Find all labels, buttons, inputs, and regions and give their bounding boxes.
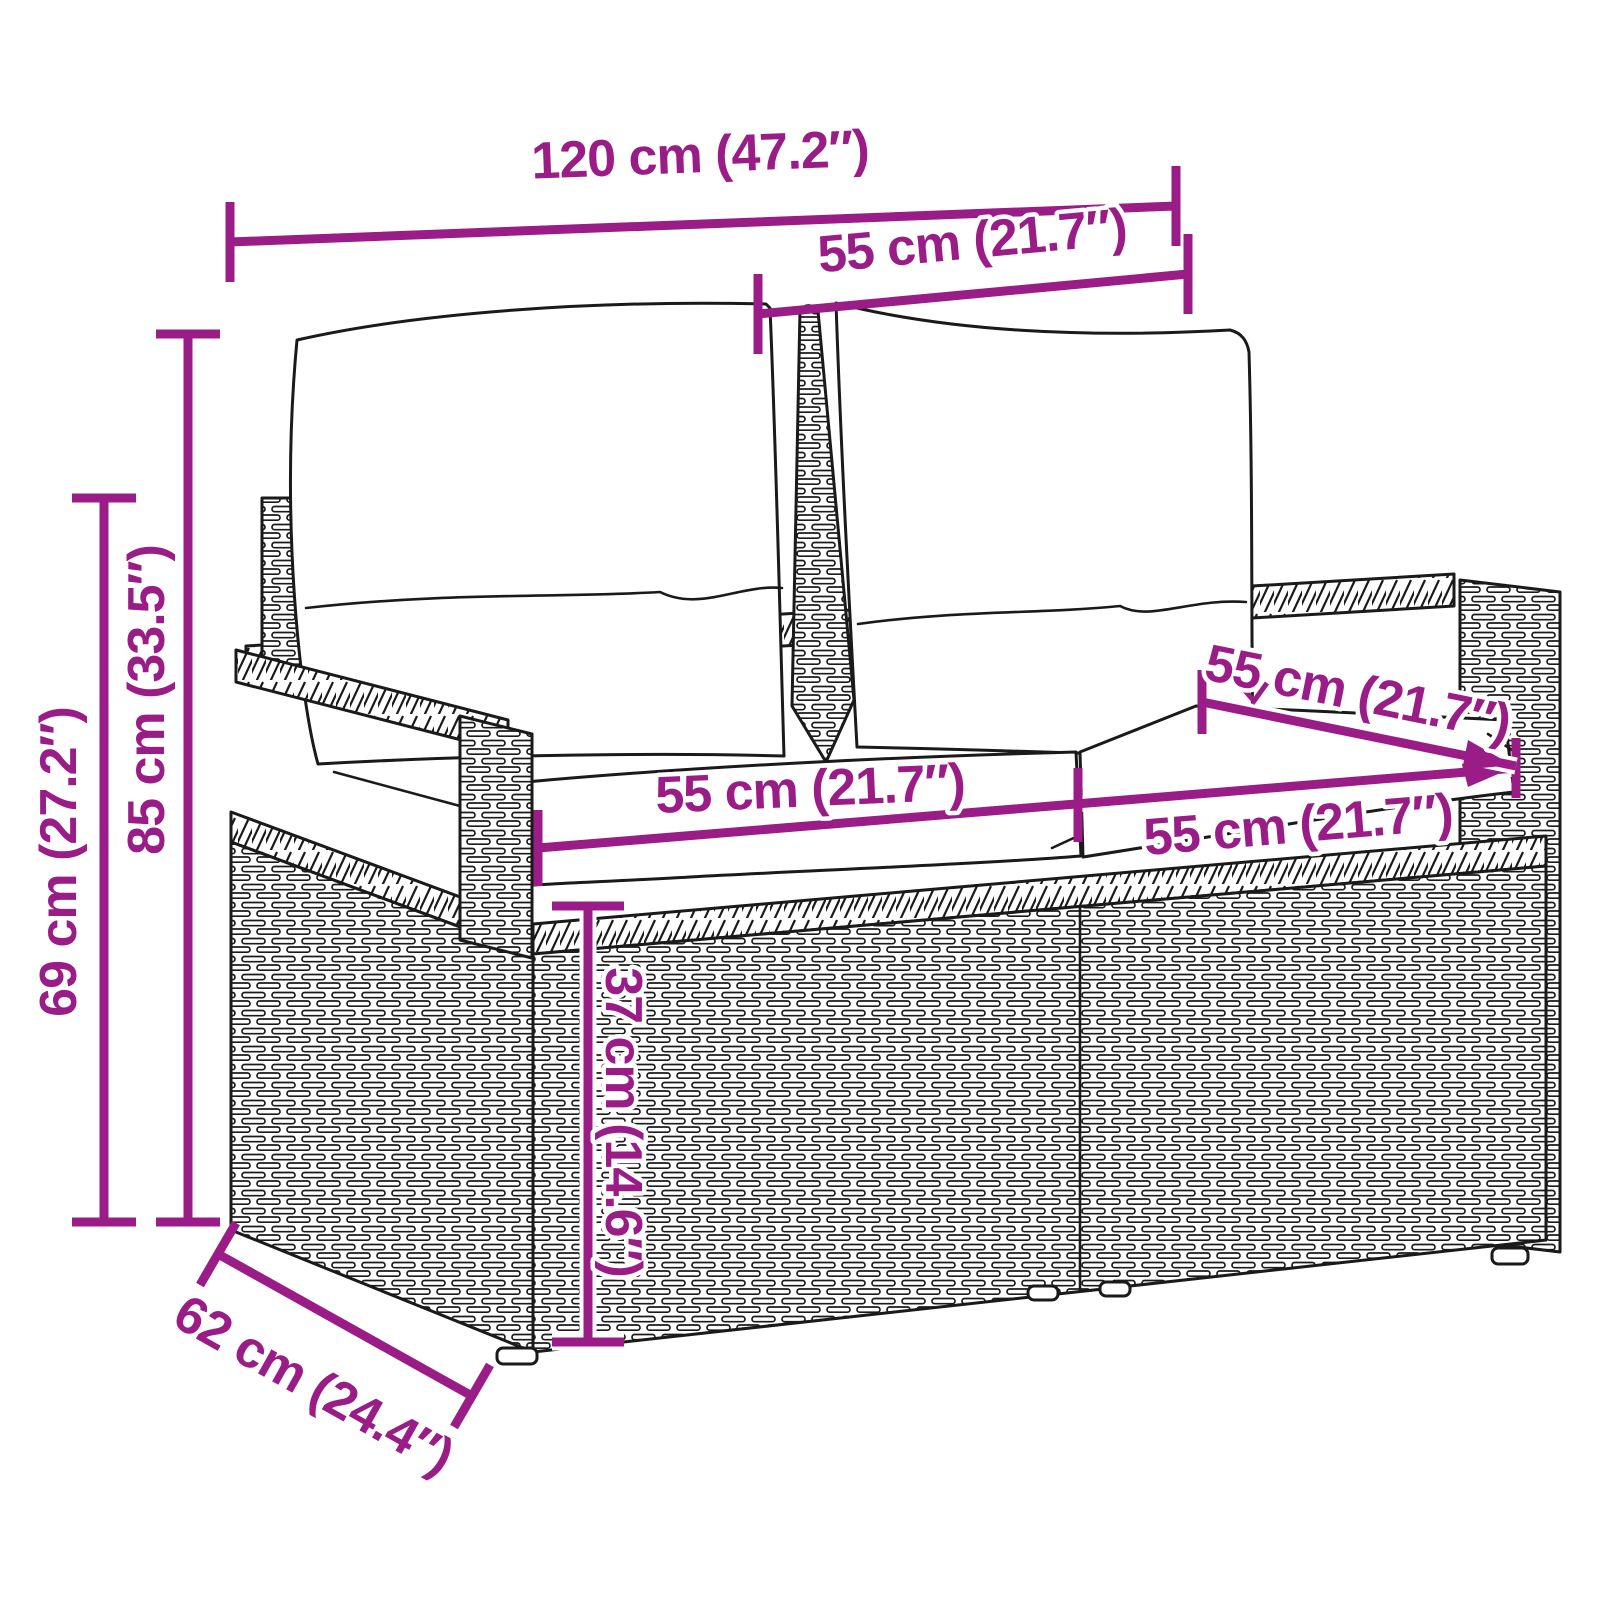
dim-armrest-height-label: 69 cm (27.2″): [30, 707, 88, 1017]
dim-total-height: 85 cm (33.5″): [118, 334, 220, 1222]
left-armrest-front-post: [460, 716, 532, 958]
bench-foot: [497, 1348, 537, 1364]
bench-foot: [1028, 1286, 1058, 1300]
left-armrest-window-bottom: [334, 772, 460, 806]
dim-seat-height-label: 37 cm (14.6″): [594, 967, 652, 1277]
bench-foot: [1100, 1282, 1130, 1296]
dim-total-height-label: 85 cm (33.5″): [118, 545, 176, 855]
back-cushion-right: [836, 303, 1253, 760]
dimension-diagram: 120 cm (47.2″) 55 cm (21.7″) 85 cm (33.5…: [0, 0, 1600, 1600]
dim-overall-depth-label: 62 cm (24.4″): [164, 1284, 462, 1486]
bench-foot: [1492, 1248, 1528, 1264]
dim-overall-width-label: 120 cm (47.2″): [530, 120, 870, 191]
